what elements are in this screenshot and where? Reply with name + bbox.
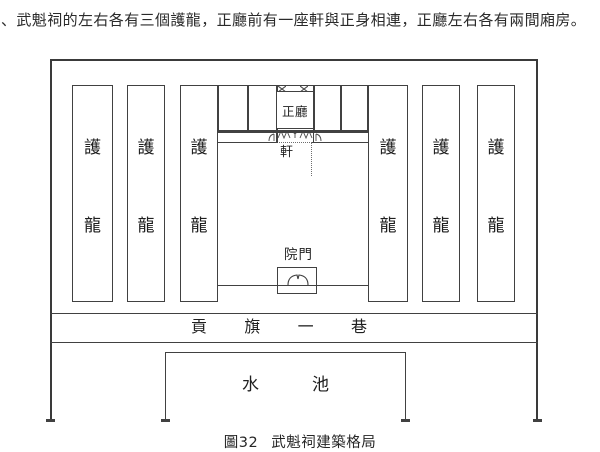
lane-char: 一 bbox=[298, 319, 314, 335]
wing-room-right-inner: 護 龍 bbox=[368, 85, 408, 302]
wing-room-left-middle: 護 龍 bbox=[127, 85, 165, 302]
lane-char: 巷 bbox=[351, 319, 367, 335]
porch-dotted-line bbox=[311, 143, 312, 176]
wing-room-left-inner: 護 龍 bbox=[180, 85, 218, 302]
wing-room-right-middle: 護 龍 bbox=[422, 85, 460, 302]
figure-caption: 圖32武魁祠建築格局 bbox=[0, 431, 600, 452]
pond-char: 水 bbox=[242, 377, 259, 421]
figure-number: 圖32 bbox=[224, 435, 258, 451]
wing-label-bottom: 龍 bbox=[478, 218, 514, 235]
main-hall-label: 正廳 bbox=[282, 101, 308, 120]
line-end-tick bbox=[533, 419, 542, 422]
door-swing-icon bbox=[268, 133, 275, 142]
wall-line bbox=[247, 86, 249, 130]
wall-line bbox=[276, 131, 278, 143]
gate-doors-icon bbox=[287, 273, 309, 286]
wall-line bbox=[340, 86, 342, 130]
wing-label-bottom: 龍 bbox=[369, 218, 407, 235]
line-end-tick bbox=[46, 419, 55, 422]
wall-line bbox=[313, 131, 315, 143]
wing-label-top: 護 bbox=[128, 140, 164, 157]
wing-label-bottom: 龍 bbox=[128, 218, 164, 235]
pond-char: 池 bbox=[312, 377, 329, 421]
lane-name: 貢 旗 一 巷 bbox=[191, 319, 367, 335]
wing-label-top: 護 bbox=[369, 140, 407, 157]
gate-label: 院門 bbox=[284, 249, 313, 263]
wing-label-top: 護 bbox=[478, 140, 514, 157]
figure-title: 武魁祠建築格局 bbox=[271, 435, 376, 451]
pond-box: 水 池 bbox=[165, 352, 406, 421]
door-swing-icon bbox=[315, 133, 322, 142]
wing-label-bottom: 龍 bbox=[73, 218, 112, 235]
lane-char: 旗 bbox=[244, 319, 260, 335]
wing-label-top: 護 bbox=[423, 140, 459, 157]
wing-label-bottom: 龍 bbox=[423, 218, 459, 235]
porch-dotted-line bbox=[277, 142, 312, 143]
main-hall-box: 正廳 bbox=[276, 91, 314, 129]
wing-label-top: 護 bbox=[181, 140, 217, 157]
wall-line bbox=[218, 131, 368, 133]
line-end-tick bbox=[401, 419, 410, 422]
line-end-tick bbox=[161, 419, 170, 422]
lane-char: 貢 bbox=[191, 319, 207, 335]
intro-text: 、武魁祠的左右各有三個護龍，正廳前有一座軒與正身相連，正廳左右各有兩間廂房。 bbox=[1, 9, 599, 30]
wing-label-top: 護 bbox=[73, 140, 112, 157]
wing-room-left-outer: 護 龍 bbox=[72, 85, 113, 302]
wing-room-right-outer: 護 龍 bbox=[477, 85, 515, 302]
porch-label: 軒 bbox=[280, 146, 293, 159]
wing-label-bottom: 龍 bbox=[181, 218, 217, 235]
